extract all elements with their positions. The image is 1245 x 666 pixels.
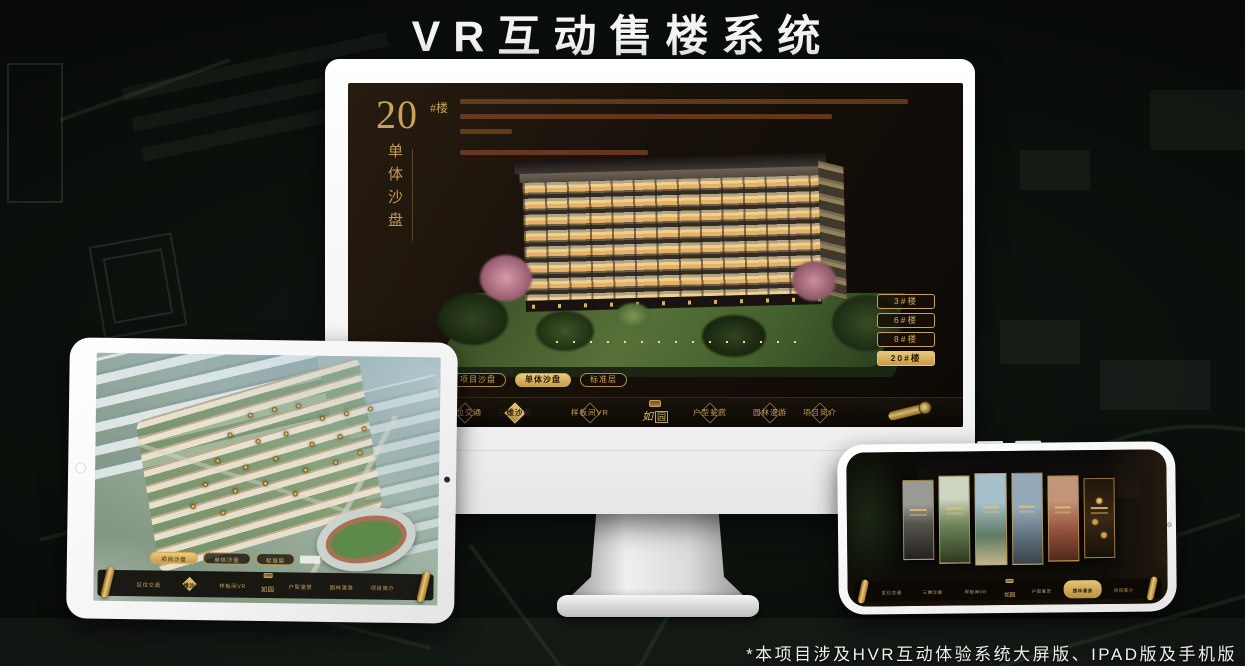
nav-item-floorplan[interactable]: 户型鉴赏 <box>1023 580 1061 598</box>
divider <box>412 149 413 241</box>
stage: VR互动售楼系统 20 #楼 单体沙盘 <box>0 0 1245 666</box>
nav-item-location-traffic[interactable]: 区位交通 <box>872 582 910 600</box>
building-number: 20 <box>376 91 418 138</box>
floor-button-group: 3#楼 6#楼 8#楼 20#楼 <box>877 294 935 366</box>
gallery-panel-3[interactable] <box>975 473 1007 565</box>
scroll-roller-icon <box>857 579 869 604</box>
view-mode-label: 单体沙盘 <box>384 143 405 263</box>
footnote: *本项目涉及HVR互动体验系统大屏版、IPAD版及手机版 <box>746 640 1237 665</box>
scene-gallery <box>902 466 1115 572</box>
nav-item-floorplan[interactable]: 户型鉴赏 <box>691 398 729 427</box>
brand-logo: 如园 <box>642 398 668 427</box>
floor-button-8[interactable]: 8#楼 <box>877 332 935 347</box>
path-lights <box>556 341 796 343</box>
emblem-icon <box>649 400 661 407</box>
brand-logo: 如园 <box>259 573 275 597</box>
nav-item-model-room-vr[interactable]: 样板间VR <box>569 398 611 427</box>
gallery-panel-2[interactable] <box>939 475 971 563</box>
tablet-camera-icon <box>75 462 86 473</box>
floor-button-20[interactable]: 20#楼 <box>877 351 935 366</box>
nav-item-model-room-vr[interactable]: 样板间VR <box>954 581 996 599</box>
tab-project-sandbox[interactable]: 项目沙盘 <box>150 551 198 564</box>
monitor-stand-base <box>557 595 759 617</box>
area-chip <box>300 556 320 564</box>
tablet-device: 项目沙盘 单体沙盘 标准层 区位交通 三维沙盘 样板间VR 如园 户型鉴赏 园林… <box>66 337 458 623</box>
tab-single-sandbox[interactable]: 单体沙盘 <box>203 552 251 565</box>
tree <box>702 315 766 357</box>
nav-item-project-intro[interactable]: 项目简介 <box>363 577 401 596</box>
gallery-panel-5[interactable] <box>1047 475 1079 561</box>
tab-project-sandbox[interactable]: 项目沙盘 <box>450 373 506 387</box>
nav-item-3d-sandbox[interactable]: 三维沙盘 <box>170 575 208 594</box>
tablet-screen: 项目沙盘 单体沙盘 标准层 区位交通 三维沙盘 样板间VR 如园 户型鉴赏 园林… <box>93 353 440 606</box>
tree <box>616 303 650 329</box>
monitor-stand <box>570 513 745 597</box>
tab-single-sandbox[interactable]: 单体沙盘 <box>515 373 571 387</box>
tab-standard-floor[interactable]: 标准层 <box>256 553 295 566</box>
nav-item-floorplan[interactable]: 户型鉴赏 <box>281 576 319 595</box>
page-title: VR互动售楼系统 <box>0 2 1245 64</box>
phone-navbar: 区位交通 三维沙盘 样板间VR 如园 户型鉴赏 园林漫游 项目简介 <box>854 578 1162 601</box>
building-number-suffix: #楼 <box>430 99 448 116</box>
nav-item-3d-sandbox[interactable]: 三维沙盘 <box>496 398 534 427</box>
gallery-panel-6[interactable] <box>1083 478 1115 558</box>
tree <box>536 311 594 351</box>
tablet-view-tab-group: 项目沙盘 单体沙盘 标准层 <box>150 551 320 565</box>
brand-logo: 如园 <box>1003 578 1017 601</box>
scroll-roller-icon <box>100 566 115 598</box>
nav-item-garden-tour[interactable]: 园林漫游 <box>751 398 789 427</box>
nav-item-location-traffic[interactable]: 区位交通 <box>129 574 167 593</box>
pink-tree <box>480 255 532 301</box>
nav-item-3d-sandbox[interactable]: 三维沙盘 <box>913 582 951 600</box>
view-tab-group: 项目沙盘 单体沙盘 标准层 <box>450 373 627 387</box>
pink-tree <box>792 261 836 301</box>
phone-device: 区位交通 三维沙盘 样板间VR 如园 户型鉴赏 园林漫游 项目简介 <box>837 441 1177 615</box>
phone-volume-button <box>977 441 1003 444</box>
floor-button-3[interactable]: 3#楼 <box>877 294 935 309</box>
scroll-roller-icon <box>1146 576 1158 601</box>
stadium-field <box>322 509 411 570</box>
building-render <box>440 143 914 383</box>
building-facade <box>523 175 822 301</box>
gallery-panel-4[interactable] <box>1011 473 1043 565</box>
apartment-building <box>522 153 822 312</box>
nav-item-garden-tour[interactable]: 园林漫游 <box>322 577 360 596</box>
tab-standard-floor[interactable]: 标准层 <box>580 373 627 387</box>
tablet-home-button[interactable] <box>444 477 450 483</box>
tablet-navbar: 区位交通 三维沙盘 样板间VR 如园 户型鉴赏 园林漫游 项目简介 <box>97 570 433 601</box>
emblem-icon <box>1006 578 1014 582</box>
scroll-roller-icon <box>416 571 431 603</box>
gallery-panel-1[interactable] <box>902 480 934 560</box>
phone-volume-button <box>1015 441 1041 444</box>
scroll-icon[interactable] <box>887 398 934 425</box>
nav-item-garden-tour[interactable]: 园林漫游 <box>1064 580 1102 598</box>
tree <box>438 293 508 345</box>
floor-button-6[interactable]: 6#楼 <box>877 313 935 328</box>
phone-camera-icon <box>1167 522 1172 527</box>
nav-item-project-intro[interactable]: 项目简介 <box>1105 580 1143 598</box>
nav-item-model-room-vr[interactable]: 样板间VR <box>211 575 253 594</box>
emblem-icon <box>263 573 272 578</box>
nav-item-project-intro[interactable]: 项目简介 <box>801 398 839 427</box>
phone-screen: 区位交通 三维沙盘 样板间VR 如园 户型鉴赏 园林漫游 项目简介 <box>846 449 1168 606</box>
